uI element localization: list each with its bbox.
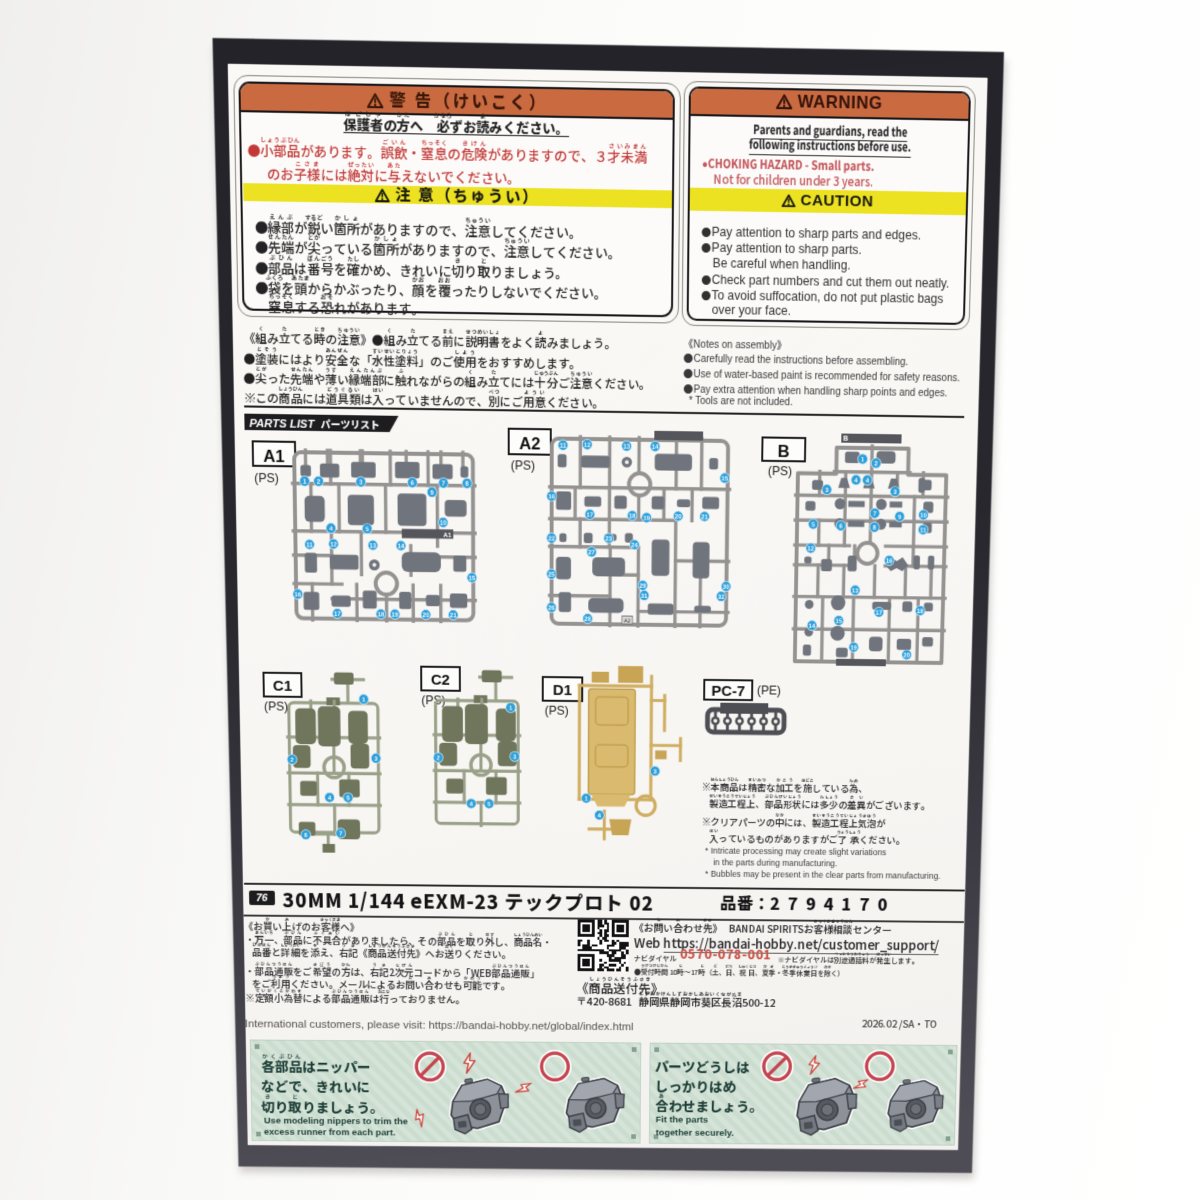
svg-text:17: 17 <box>333 611 340 618</box>
svg-text:1: 1 <box>302 478 306 485</box>
svg-text:12: 12 <box>584 442 591 449</box>
svg-text:7: 7 <box>339 830 343 837</box>
svg-text:5: 5 <box>365 526 369 533</box>
svg-text:10: 10 <box>439 520 446 527</box>
svg-text:14: 14 <box>652 444 659 451</box>
svg-text:10: 10 <box>920 512 927 519</box>
svg-text:27: 27 <box>588 549 595 556</box>
svg-text:4: 4 <box>855 477 859 484</box>
svg-text:1: 1 <box>509 705 513 712</box>
svg-text:18: 18 <box>917 608 924 615</box>
svg-text:19: 19 <box>391 612 398 619</box>
svg-text:9: 9 <box>898 514 902 521</box>
svg-text:7: 7 <box>873 511 877 518</box>
svg-text:3: 3 <box>894 489 898 496</box>
svg-text:2: 2 <box>290 757 294 764</box>
svg-text:3: 3 <box>825 487 829 494</box>
svg-text:8: 8 <box>465 481 469 488</box>
svg-text:2: 2 <box>316 479 320 486</box>
svg-text:31: 31 <box>641 593 648 600</box>
svg-text:20: 20 <box>675 513 682 520</box>
svg-text:18: 18 <box>377 611 384 618</box>
svg-text:6: 6 <box>304 832 308 839</box>
svg-text:20: 20 <box>904 652 911 659</box>
svg-text:17: 17 <box>586 512 593 519</box>
svg-text:8: 8 <box>873 525 877 532</box>
svg-text:9: 9 <box>430 490 434 497</box>
svg-text:15: 15 <box>836 618 843 625</box>
svg-text:16: 16 <box>294 592 301 599</box>
svg-text:32: 32 <box>718 594 725 601</box>
svg-text:4: 4 <box>866 478 870 485</box>
svg-text:A2: A2 <box>624 618 631 624</box>
svg-text:4: 4 <box>329 526 333 533</box>
svg-text:12: 12 <box>808 546 815 553</box>
svg-text:13: 13 <box>852 588 859 595</box>
svg-text:2: 2 <box>875 461 879 468</box>
svg-text:12: 12 <box>330 541 337 548</box>
svg-text:24: 24 <box>631 542 638 549</box>
svg-text:15: 15 <box>721 475 728 482</box>
svg-text:11: 11 <box>560 442 567 449</box>
svg-text:20: 20 <box>422 612 429 619</box>
svg-text:4: 4 <box>328 795 332 802</box>
svg-text:6: 6 <box>410 480 414 487</box>
svg-text:4: 4 <box>598 813 602 820</box>
svg-text:3: 3 <box>359 479 363 486</box>
svg-text:6: 6 <box>839 523 843 530</box>
svg-text:18: 18 <box>629 513 636 520</box>
svg-text:17: 17 <box>876 610 883 617</box>
svg-text:16: 16 <box>548 494 555 501</box>
svg-text:14: 14 <box>397 543 404 550</box>
svg-text:11: 11 <box>306 542 313 549</box>
svg-text:5: 5 <box>346 795 350 802</box>
svg-text:3: 3 <box>374 755 378 762</box>
svg-text:16: 16 <box>886 558 893 565</box>
svg-text:1: 1 <box>362 696 366 703</box>
svg-text:5: 5 <box>812 521 816 528</box>
svg-text:26: 26 <box>548 605 555 612</box>
svg-text:14: 14 <box>809 623 816 630</box>
svg-text:25: 25 <box>548 571 555 578</box>
svg-text:30: 30 <box>722 584 729 591</box>
svg-text:13: 13 <box>369 543 376 550</box>
svg-text:23: 23 <box>605 536 612 543</box>
svg-text:19: 19 <box>851 645 858 652</box>
svg-text:21: 21 <box>701 514 708 521</box>
svg-text:4: 4 <box>470 801 474 808</box>
svg-text:A1: A1 <box>443 532 451 539</box>
svg-text:11: 11 <box>920 527 927 534</box>
svg-text:1: 1 <box>585 796 589 803</box>
svg-text:28: 28 <box>584 616 591 623</box>
svg-text:5: 5 <box>487 802 491 809</box>
svg-text:13: 13 <box>623 443 630 450</box>
svg-text:22: 22 <box>548 535 555 542</box>
svg-text:3: 3 <box>654 769 658 776</box>
svg-text:1: 1 <box>861 456 865 463</box>
svg-text:15: 15 <box>468 575 475 582</box>
svg-text:7: 7 <box>441 480 445 487</box>
svg-text:19: 19 <box>643 515 650 522</box>
svg-text:21: 21 <box>449 612 456 619</box>
svg-text:29: 29 <box>639 583 646 590</box>
svg-text:3: 3 <box>513 754 517 761</box>
svg-text:2: 2 <box>437 755 441 762</box>
